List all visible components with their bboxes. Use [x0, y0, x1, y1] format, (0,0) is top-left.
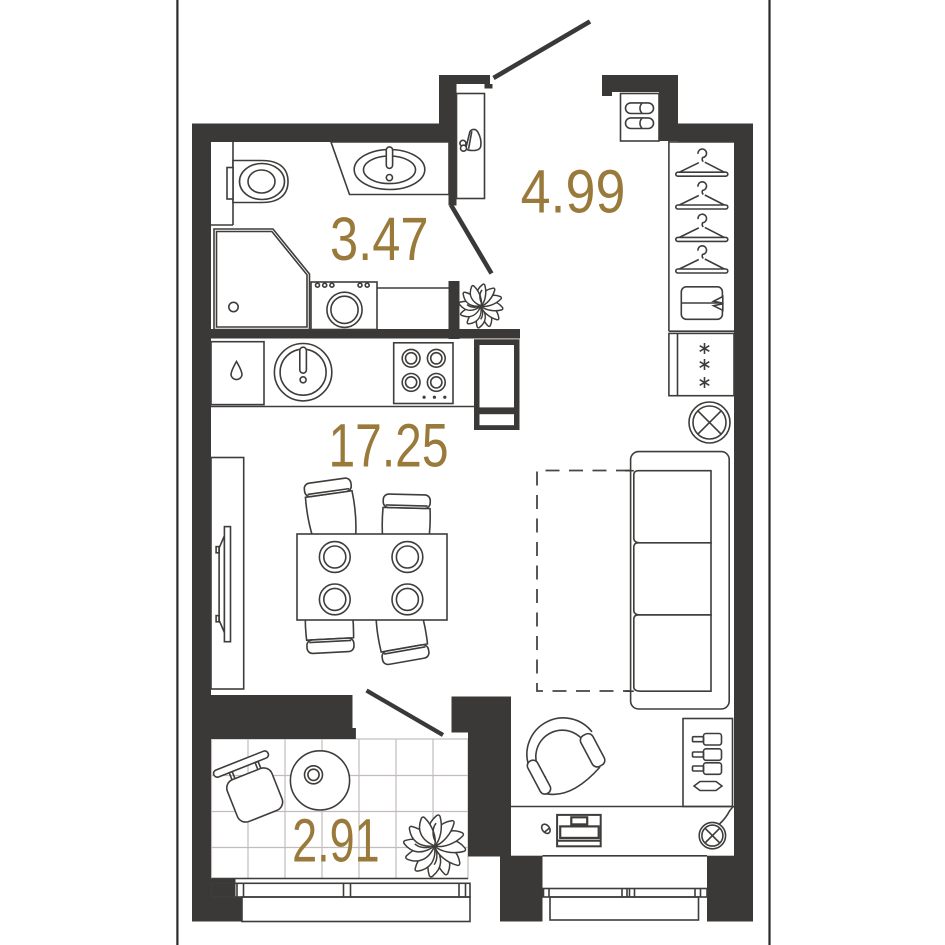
svg-text:3.47: 3.47 — [330, 205, 429, 273]
svg-text:2.91: 2.91 — [292, 807, 380, 875]
svg-text:4.99: 4.99 — [521, 158, 626, 226]
svg-text:17.25: 17.25 — [329, 411, 449, 479]
